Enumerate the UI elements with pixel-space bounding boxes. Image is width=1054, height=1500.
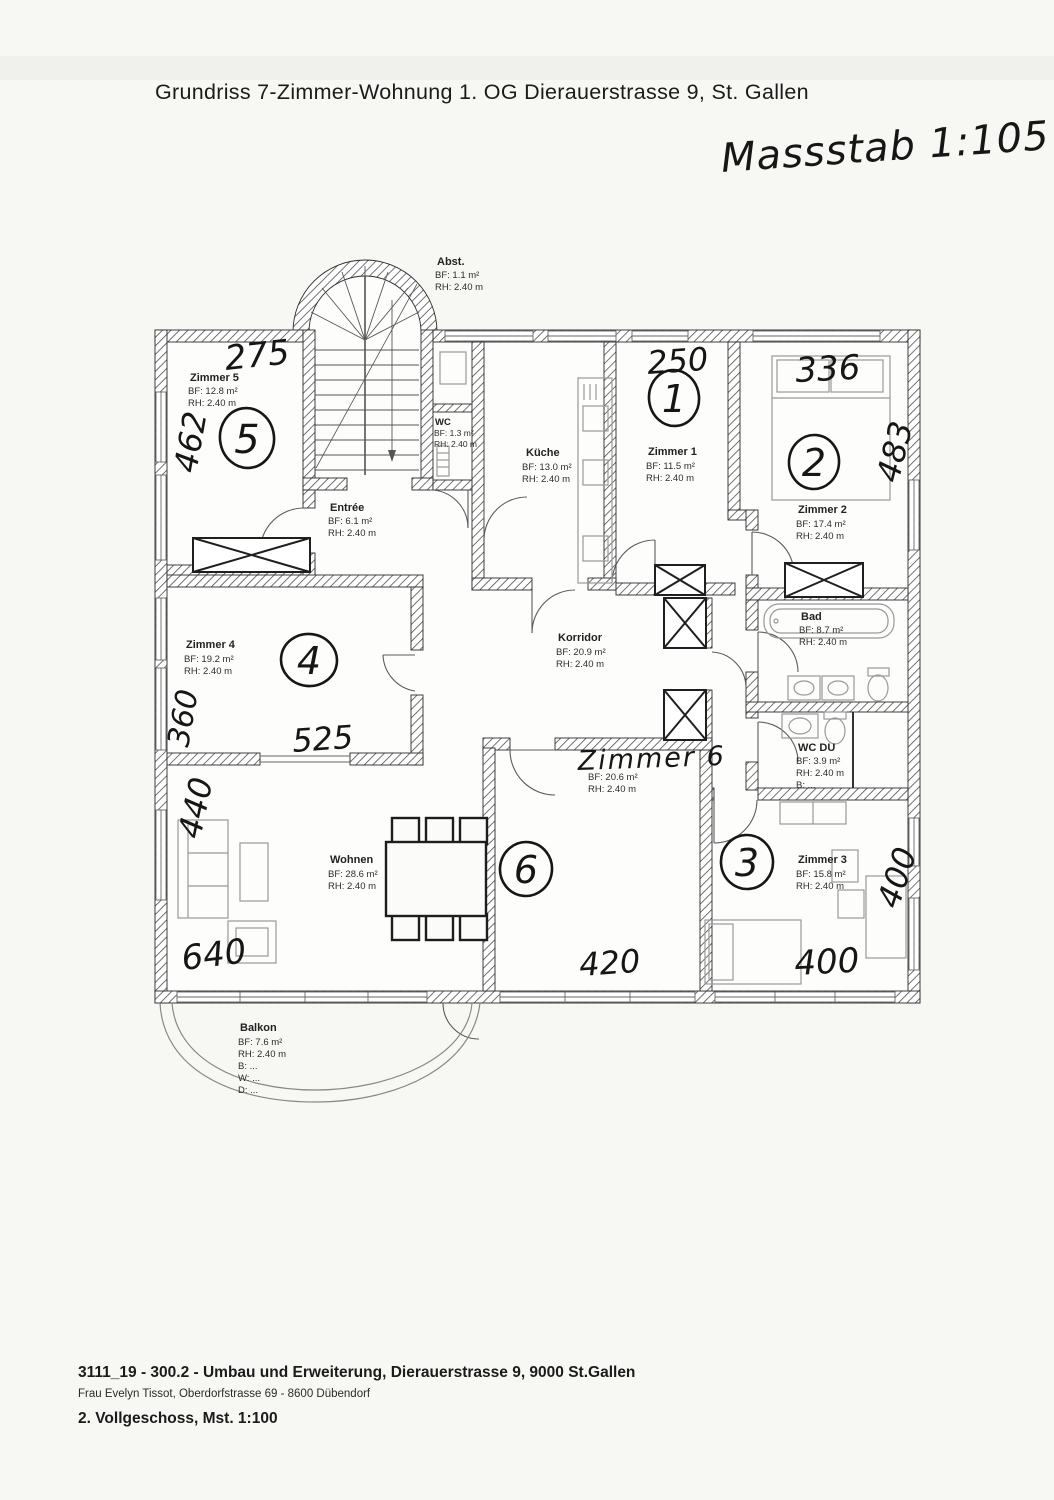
svg-text:Balkon: Balkon bbox=[240, 1022, 277, 1034]
handwritten-zimmer6-name: Zimmer 6 bbox=[576, 741, 726, 777]
svg-text:RH: 2.40 m: RH: 2.40 m bbox=[434, 439, 477, 449]
svg-text:B: ...: B: ... bbox=[796, 780, 816, 791]
svg-text:RH: 2.40 m: RH: 2.40 m bbox=[796, 768, 844, 779]
svg-text:3: 3 bbox=[735, 841, 759, 885]
svg-text:5: 5 bbox=[234, 417, 259, 463]
shaft-korridor-a bbox=[664, 598, 706, 648]
storey-scale-line: 2. Vollgeschoss, Mst. 1:100 bbox=[78, 1410, 278, 1427]
svg-text:BF: 12.8 m²: BF: 12.8 m² bbox=[188, 386, 238, 397]
label-wohnen: Wohnen BF: 28.6 m² RH: 2.40 m bbox=[328, 854, 378, 892]
page-title: Grundriss 7-Zimmer-Wohnung 1. OG Dieraue… bbox=[155, 80, 809, 104]
dim-zimmer6-bottom: 420 bbox=[578, 942, 642, 984]
shaft-korridor-b bbox=[664, 690, 706, 740]
label-zimmer2: Zimmer 2 BF: 17.4 m² RH: 2.40 m bbox=[796, 504, 847, 542]
svg-text:4: 4 bbox=[297, 639, 321, 683]
svg-text:Bad: Bad bbox=[801, 611, 822, 623]
svg-text:RH: 2.40 m: RH: 2.40 m bbox=[328, 881, 376, 892]
dim-zimmer3-bottom: 400 bbox=[793, 941, 860, 984]
svg-text:RH: 2.40 m: RH: 2.40 m bbox=[328, 528, 376, 539]
svg-text:RH: 2.40 m: RH: 2.40 m bbox=[522, 474, 570, 485]
svg-text:RH: 2.40 m: RH: 2.40 m bbox=[556, 659, 604, 670]
dim-zimmer2-top: 336 bbox=[794, 348, 861, 391]
svg-text:Zimmer 1: Zimmer 1 bbox=[648, 446, 697, 458]
svg-text:Küche: Küche bbox=[526, 447, 560, 459]
shaft-zimmer1 bbox=[655, 565, 705, 595]
svg-text:1: 1 bbox=[662, 377, 686, 421]
label-korridor: Korridor BF: 20.9 m² RH: 2.40 m bbox=[556, 632, 606, 670]
svg-text:W: ...: W: ... bbox=[238, 1073, 260, 1084]
svg-text:BF: 17.4 m²: BF: 17.4 m² bbox=[796, 519, 846, 530]
svg-text:Wohnen: Wohnen bbox=[330, 854, 373, 866]
svg-text:BF: 3.9 m²: BF: 3.9 m² bbox=[796, 756, 840, 767]
dim-zimmer1-top: 250 bbox=[646, 340, 710, 382]
project-title-line: 3111_19 - 300.2 - Umbau und Erweiterung,… bbox=[78, 1364, 635, 1381]
svg-text:BF: 19.2 m²: BF: 19.2 m² bbox=[184, 654, 234, 665]
svg-text:RH: 2.40 m: RH: 2.40 m bbox=[188, 398, 236, 409]
svg-text:Entrée: Entrée bbox=[330, 502, 364, 514]
svg-text:WC: WC bbox=[435, 417, 451, 428]
svg-text:RH: 2.40 m: RH: 2.40 m bbox=[184, 666, 232, 677]
svg-text:RH: 2.40 m: RH: 2.40 m bbox=[238, 1049, 286, 1060]
svg-text:Zimmer 4: Zimmer 4 bbox=[186, 639, 236, 651]
dim-wohnen-bottom: 640 bbox=[179, 931, 248, 979]
wardrobe-zimmer5 bbox=[193, 538, 310, 572]
scan-shading bbox=[0, 56, 1054, 80]
svg-text:RH: 2.40 m: RH: 2.40 m bbox=[799, 637, 847, 648]
svg-text:RH: 2.40 m: RH: 2.40 m bbox=[796, 531, 844, 542]
svg-text:D: ...: D: ... bbox=[238, 1085, 258, 1096]
svg-text:WC DU: WC DU bbox=[798, 742, 835, 754]
svg-text:B: ...: B: ... bbox=[238, 1061, 258, 1072]
svg-text:RH: 2.40 m: RH: 2.40 m bbox=[796, 881, 844, 892]
svg-text:RH: 2.40 m: RH: 2.40 m bbox=[588, 784, 636, 795]
balcony bbox=[160, 1003, 480, 1102]
svg-text:BF: 1.3 m²: BF: 1.3 m² bbox=[434, 428, 474, 438]
client-line: Frau Evelyn Tissot, Oberdorfstrasse 69 -… bbox=[78, 1388, 371, 1400]
handwritten-scale-note: Massstab 1:105 bbox=[719, 113, 1051, 182]
svg-text:BF: 13.0 m²: BF: 13.0 m² bbox=[522, 462, 572, 473]
label-zimmer4: Zimmer 4 BF: 19.2 m² RH: 2.40 m bbox=[184, 639, 236, 677]
svg-text:RH: 2.40 m: RH: 2.40 m bbox=[646, 473, 694, 484]
svg-text:RH: 2.40 m: RH: 2.40 m bbox=[435, 282, 483, 293]
label-abst: Abst. BF: 1.1 m² RH: 2.40 m bbox=[435, 256, 483, 293]
scanned-floorplan-page: Grundriss 7-Zimmer-Wohnung 1. OG Dieraue… bbox=[0, 0, 1054, 1500]
dim-zimmer5-top: 275 bbox=[223, 332, 292, 379]
svg-text:Abst.: Abst. bbox=[437, 256, 465, 268]
svg-text:Zimmer 2: Zimmer 2 bbox=[798, 504, 847, 516]
dining-set bbox=[386, 818, 487, 940]
label-zimmer3: Zimmer 3 BF: 15.8 m² RH: 2.40 m bbox=[796, 854, 847, 892]
svg-text:Korridor: Korridor bbox=[558, 632, 603, 644]
svg-text:BF: 1.1 m²: BF: 1.1 m² bbox=[435, 270, 479, 281]
svg-text:BF: 7.6 m²: BF: 7.6 m² bbox=[238, 1037, 282, 1048]
svg-text:2: 2 bbox=[802, 441, 826, 485]
svg-text:BF: 20.9 m²: BF: 20.9 m² bbox=[556, 647, 606, 658]
svg-text:BF: 28.6 m²: BF: 28.6 m² bbox=[328, 869, 378, 880]
floor-plan-svg: Grundriss 7-Zimmer-Wohnung 1. OG Dieraue… bbox=[0, 0, 1054, 1500]
svg-text:Zimmer 3: Zimmer 3 bbox=[798, 854, 847, 866]
svg-text:BF: 8.7 m²: BF: 8.7 m² bbox=[799, 625, 843, 636]
svg-text:BF: 6.1 m²: BF: 6.1 m² bbox=[328, 516, 372, 527]
label-zimmer1: Zimmer 1 BF: 11.5 m² RH: 2.40 m bbox=[646, 446, 697, 484]
wardrobe-zimmer2 bbox=[785, 563, 863, 597]
svg-text:6: 6 bbox=[514, 848, 538, 892]
svg-text:BF: 15.8 m²: BF: 15.8 m² bbox=[796, 869, 846, 880]
title-block: 3111_19 - 300.2 - Umbau und Erweiterung,… bbox=[78, 1364, 635, 1427]
svg-text:BF: 11.5 m²: BF: 11.5 m² bbox=[646, 461, 695, 472]
dim-zimmer4-bottom: 525 bbox=[291, 718, 355, 760]
